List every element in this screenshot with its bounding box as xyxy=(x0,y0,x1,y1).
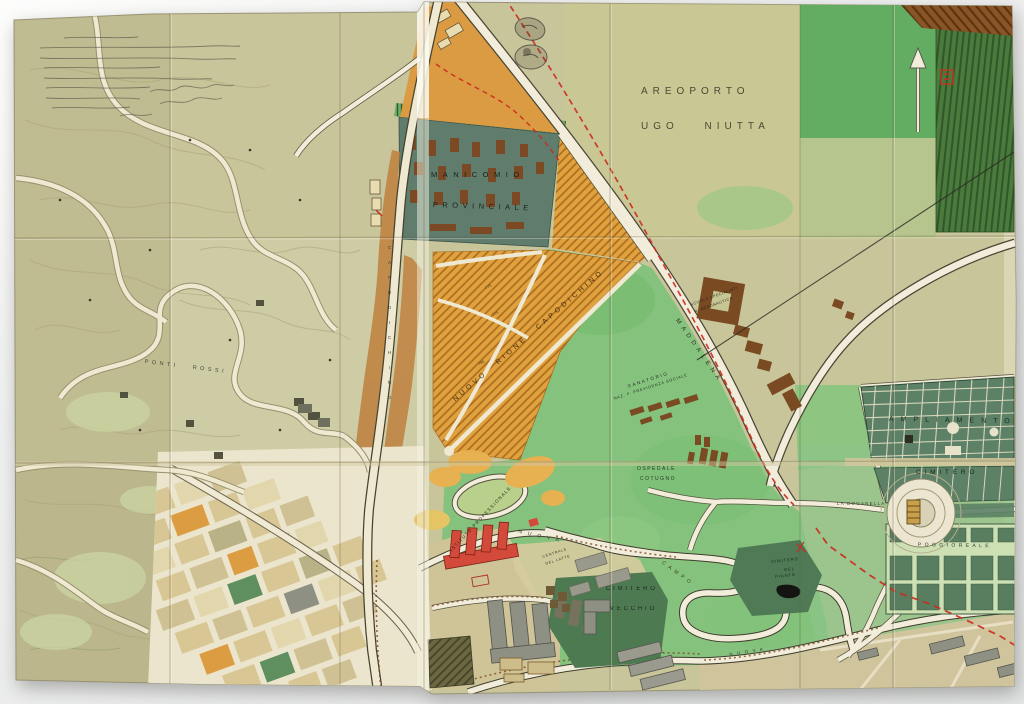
map-artwork xyxy=(0,0,1024,704)
gray-industrial xyxy=(485,595,555,663)
dark-hatched-block xyxy=(428,636,474,688)
hatched-green-field xyxy=(936,2,1014,232)
roadside-buildings xyxy=(370,180,381,226)
map-sheet: AREOPORTO UGO NIUTTA MANICOMIO PROVINCIA… xyxy=(0,0,1024,704)
photo-stage: AREOPORTO UGO NIUTTA MANICOMIO PROVINCIA… xyxy=(0,0,1024,704)
scuola-specialisti-building xyxy=(696,277,745,326)
